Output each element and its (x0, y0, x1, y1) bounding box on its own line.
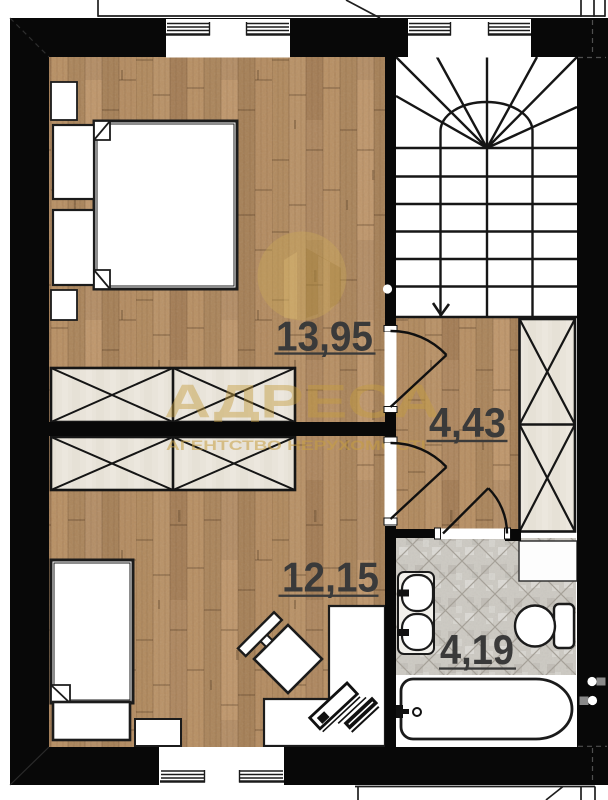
svg-text:4,19: 4,19 (440, 626, 514, 673)
svg-text:12,15: 12,15 (282, 554, 379, 601)
svg-text:4,43: 4,43 (429, 399, 506, 446)
